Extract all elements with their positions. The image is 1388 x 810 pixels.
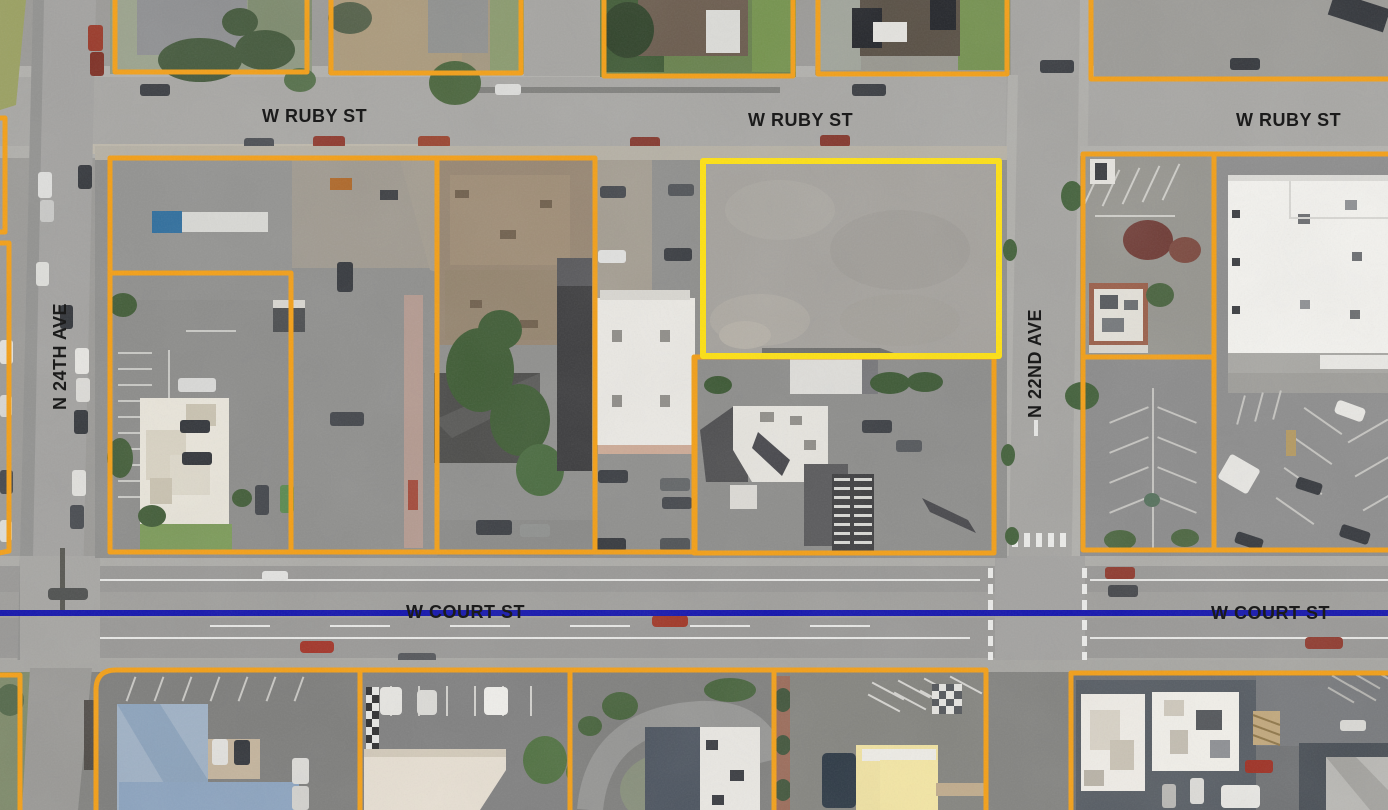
svg-text:N 22ND AVE: N 22ND AVE	[1025, 309, 1045, 418]
svg-text:W RUBY ST: W RUBY ST	[748, 110, 853, 130]
svg-text:W COURT ST: W COURT ST	[406, 602, 525, 622]
svg-text:W RUBY ST: W RUBY ST	[262, 106, 367, 126]
svg-text:N 24TH AVE: N 24TH AVE	[50, 303, 70, 410]
svg-text:W COURT ST: W COURT ST	[1211, 603, 1330, 623]
svg-text:W RUBY ST: W RUBY ST	[1236, 110, 1341, 130]
